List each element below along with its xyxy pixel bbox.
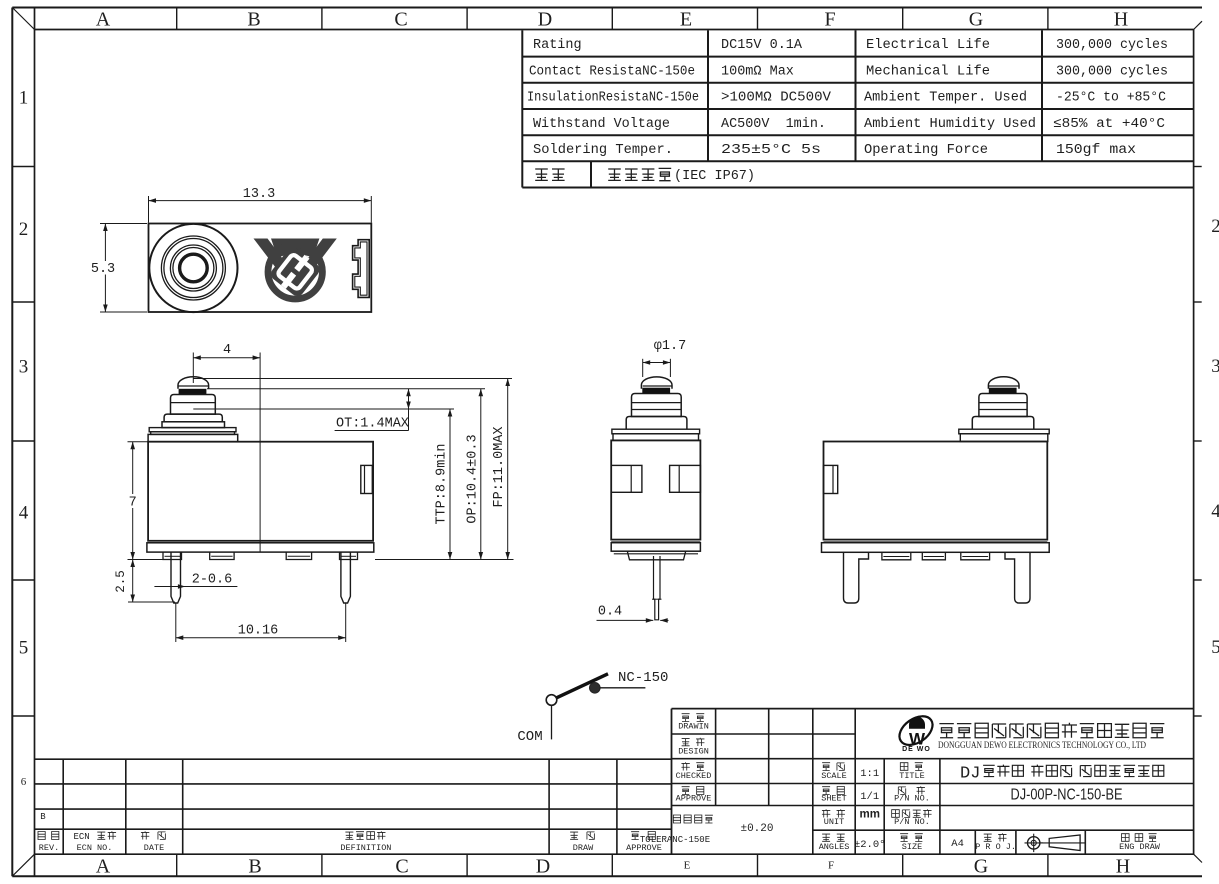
svg-text:OT:1.4MAX: OT:1.4MAX (336, 417, 409, 432)
svg-text:A: A (96, 856, 111, 878)
svg-text:Rating: Rating (533, 38, 582, 53)
svg-text:G: G (974, 856, 988, 878)
svg-text:2-0.6: 2-0.6 (192, 573, 233, 588)
svg-text:5: 5 (1211, 637, 1219, 658)
svg-text:2: 2 (1211, 216, 1219, 237)
svg-text:6: 6 (21, 776, 27, 788)
svg-text:(IEC IP67): (IEC IP67) (674, 169, 755, 184)
svg-text:C: C (394, 9, 407, 31)
svg-text:2.5: 2.5 (114, 570, 128, 593)
svg-text:B: B (247, 9, 260, 31)
svg-text:Soldering Temper.: Soldering Temper. (533, 143, 673, 158)
svg-text:P/N NO.: P/N NO. (894, 817, 930, 827)
svg-text:4: 4 (223, 343, 231, 358)
svg-text:4: 4 (1211, 501, 1219, 522)
svg-text:Ambient Humidity Used: Ambient Humidity Used (864, 117, 1036, 132)
svg-text:E: E (680, 9, 692, 31)
svg-text:REV.: REV. (39, 843, 59, 853)
svg-text:DONGGUAN DEWO ELECTRONICS TECH: DONGGUAN DEWO ELECTRONICS TECHNOLOGY CO.… (938, 741, 1146, 751)
svg-text:APPROVE: APPROVE (626, 843, 662, 853)
svg-text:SCALE: SCALE (821, 771, 847, 781)
svg-text:DC15V 0.1A: DC15V 0.1A (721, 38, 803, 53)
svg-text:Withstand Voltage: Withstand Voltage (533, 117, 670, 132)
svg-text:E: E (684, 860, 691, 872)
svg-text:13.3: 13.3 (243, 187, 275, 202)
svg-text:H: H (1114, 9, 1128, 31)
svg-text:F: F (828, 860, 834, 872)
svg-text:TTP:8.9min: TTP:8.9min (435, 443, 450, 524)
svg-text:CHECKED: CHECKED (676, 771, 712, 781)
svg-text:C: C (395, 856, 408, 878)
svg-text:A4: A4 (951, 838, 964, 850)
svg-text:φ1.7: φ1.7 (654, 339, 686, 354)
svg-text:Ambient Temper. Used: Ambient Temper. Used (864, 91, 1027, 106)
svg-text:A: A (96, 9, 111, 31)
svg-text:150gf max: 150gf max (1056, 143, 1136, 158)
svg-text:TITLE: TITLE (899, 771, 925, 781)
svg-text:DRAW: DRAW (573, 843, 594, 853)
svg-text:P R O J.: P R O J. (975, 842, 1016, 852)
svg-text:D: D (538, 9, 552, 31)
svg-text:InsulationResistaNC-150e: InsulationResistaNC-150e (527, 91, 699, 106)
svg-text:FP:11.0MAX: FP:11.0MAX (492, 426, 507, 507)
svg-text:300,000 cycles: 300,000 cycles (1056, 38, 1168, 53)
svg-text:300,000 cycles: 300,000 cycles (1056, 64, 1168, 79)
svg-text:≤85% at +40°C: ≤85% at +40°C (1053, 117, 1165, 132)
svg-text:DESIGN: DESIGN (678, 747, 709, 757)
svg-text:1: 1 (19, 88, 29, 109)
svg-text:DEFINITION: DEFINITION (340, 843, 391, 853)
svg-text:2: 2 (19, 219, 29, 240)
svg-text:235±5°C 5s: 235±5°C 5s (721, 143, 821, 158)
svg-text:7: 7 (129, 496, 137, 511)
svg-text:3: 3 (1211, 356, 1219, 377)
svg-text:ECN NO.: ECN NO. (77, 843, 113, 853)
svg-text:-25°C to +85°C: -25°C to +85°C (1056, 91, 1166, 106)
svg-text:DJ: DJ (960, 765, 980, 784)
svg-text:P/N NO.: P/N NO. (894, 794, 930, 804)
svg-text:5.3: 5.3 (91, 262, 115, 277)
svg-text:10.16: 10.16 (238, 624, 279, 639)
svg-text:D: D (536, 856, 550, 878)
svg-text:3: 3 (19, 357, 29, 378)
svg-text:F: F (824, 9, 835, 31)
svg-text:UNIT: UNIT (824, 817, 844, 827)
svg-text:G: G (969, 9, 983, 31)
svg-text:DJ-00P-NC-150-BE: DJ-00P-NC-150-BE (1011, 787, 1123, 804)
svg-text:Operating Force: Operating Force (864, 143, 988, 158)
svg-text:COM: COM (517, 729, 542, 745)
svg-text:1/1: 1/1 (860, 791, 879, 803)
svg-text:H: H (1116, 856, 1130, 878)
svg-text:0.4: 0.4 (598, 605, 622, 620)
svg-text:±2.0°: ±2.0° (854, 839, 886, 851)
svg-text:AC500V 1min.: AC500V 1min. (721, 117, 826, 132)
svg-text:mm: mm (859, 809, 879, 821)
svg-text:B: B (40, 812, 46, 822)
svg-text:4: 4 (19, 503, 29, 524)
svg-text:B: B (248, 856, 261, 878)
svg-text:Mechanical Life: Mechanical Life (866, 64, 990, 79)
svg-text:1:1: 1:1 (860, 768, 879, 780)
svg-text:5: 5 (19, 638, 29, 659)
svg-text:SHEET: SHEET (821, 794, 847, 804)
svg-text:NC-150: NC-150 (618, 670, 668, 686)
svg-text:ECN: ECN (74, 832, 90, 842)
svg-text:±0.20: ±0.20 (740, 823, 773, 835)
svg-text:ANGLES: ANGLES (819, 842, 850, 852)
svg-text:SIZE: SIZE (902, 842, 922, 852)
svg-text:100mΩ Max: 100mΩ Max (721, 64, 794, 79)
svg-text:ENG DRAW: ENG DRAW (1119, 842, 1161, 852)
svg-text:>100MΩ DC500V: >100MΩ DC500V (721, 91, 832, 106)
svg-text:APPROVE: APPROVE (676, 794, 712, 804)
svg-text:Electrical Life: Electrical Life (866, 38, 990, 53)
svg-text:OP:10.4±0.3: OP:10.4±0.3 (465, 434, 480, 523)
svg-text:DE WO: DE WO (902, 746, 931, 753)
svg-text:DATE: DATE (144, 843, 164, 853)
svg-text:DRAWIN: DRAWIN (678, 722, 709, 732)
svg-text:Contact ResistaNC-150e: Contact ResistaNC-150e (529, 64, 695, 79)
